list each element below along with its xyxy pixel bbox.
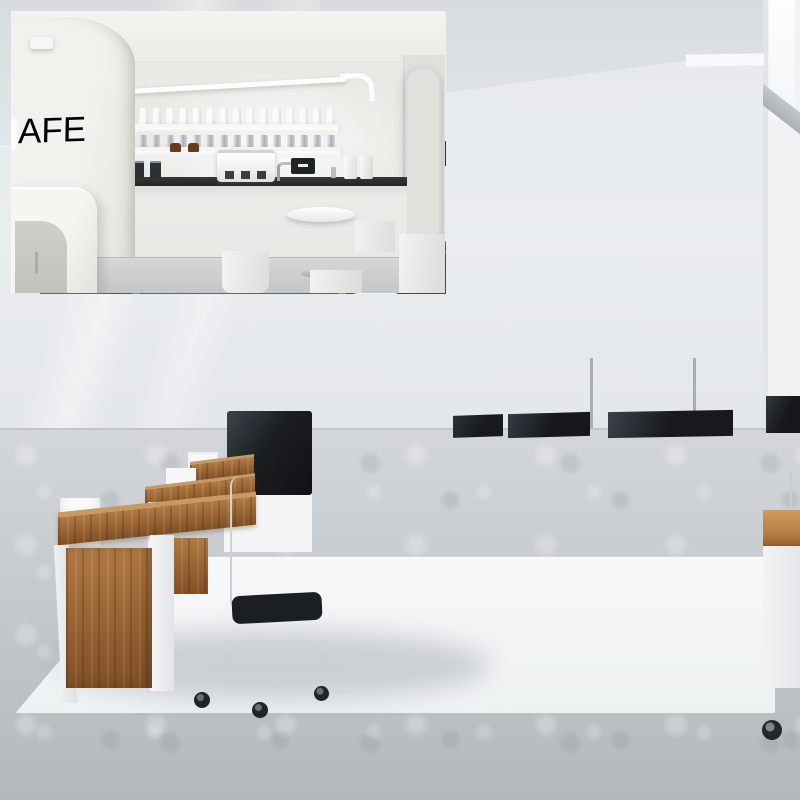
faucet [277, 162, 292, 181]
shelf-bag [139, 108, 148, 124]
shelf-cup [287, 135, 295, 147]
chair-seat [231, 592, 322, 625]
right-drawer-seam-2 [763, 648, 800, 650]
cabinet-seam-5 [353, 186, 354, 260]
cabinet-seam-4 [307, 186, 308, 260]
shelf-cup [313, 135, 321, 147]
dotted-oval-panel [405, 67, 441, 243]
right-chair-caster [762, 720, 782, 740]
monitor-back-row-1 [453, 414, 503, 438]
desk1-leg-right [150, 535, 174, 691]
shelf-bag [286, 108, 295, 124]
paper-bag-1 [344, 156, 357, 179]
grinder-small-2 [150, 161, 161, 180]
coffee-grinder-2 [187, 151, 200, 178]
shelf-cup [273, 135, 281, 147]
right-desk-top [763, 510, 800, 546]
espresso-machine [217, 150, 275, 182]
cafe-photo: AFE [11, 11, 445, 293]
drawer-handle-1 [92, 562, 126, 566]
right-drawer-unit [763, 546, 800, 688]
chair-column [262, 620, 271, 674]
stool-1-top [222, 243, 269, 259]
cabinet-seam-1 [169, 186, 170, 260]
monitor-back-row-3 [608, 410, 733, 438]
shelf-bag [232, 108, 241, 124]
office-chair [190, 474, 325, 719]
shelf-bag [152, 108, 161, 124]
stool-4 [355, 214, 395, 252]
stool-3-top [399, 225, 445, 242]
shelf-bag [246, 108, 255, 124]
machine-group-2 [241, 171, 250, 179]
stool-2 [310, 261, 362, 293]
shelf-bag [272, 108, 281, 124]
collage-stage: AFE [0, 0, 800, 800]
chair-back [230, 476, 314, 606]
drawer-handle-2 [90, 596, 124, 600]
stool-3 [399, 225, 445, 293]
inner-stool-leg [35, 252, 38, 274]
neon-sign: AFE [18, 110, 87, 152]
menu-screen-glyph [298, 164, 308, 167]
panel-band-2 [407, 187, 439, 194]
drawer-handle-3 [88, 628, 122, 632]
table-top [287, 207, 355, 222]
shelf-bag [192, 108, 201, 124]
menu-screen [291, 158, 315, 174]
right-drawer-seam-1 [763, 604, 800, 606]
chair-caster-2 [252, 702, 268, 718]
reception-opening [15, 221, 67, 293]
shelf-bags-row [139, 107, 335, 124]
inner-stool-base [27, 277, 47, 281]
drawer-seam-1 [66, 584, 152, 586]
panel-band-1 [407, 131, 439, 138]
shelf-cup [300, 135, 308, 147]
cafe-ceiling-light-2 [309, 35, 343, 53]
drawer-seam-3 [66, 650, 152, 652]
shelf-cup [152, 135, 160, 147]
syrup-bottle [331, 167, 336, 178]
chair-caster-3 [314, 686, 329, 701]
coffee-grinder-1 [169, 151, 182, 178]
machine-group-3 [257, 171, 266, 179]
machine-group-1 [225, 171, 234, 179]
cabinet-seam-2 [215, 186, 216, 260]
reception-counter [11, 187, 97, 293]
neon-sign-cut-letter [11, 119, 15, 149]
shelf-cup [139, 135, 147, 147]
chair-caster-1 [194, 692, 210, 708]
stool-2-top [310, 261, 362, 279]
cafe-ceiling-light-1 [157, 33, 193, 52]
drawer-seam-2 [66, 618, 152, 620]
stool-4-top [355, 214, 395, 227]
shelf-cups-row [139, 135, 335, 147]
shelf-cup [260, 135, 268, 147]
shelf-bag [166, 108, 175, 124]
shelf-bag [206, 108, 215, 124]
shelf-cup [206, 135, 214, 147]
milk-jug [207, 167, 216, 178]
shelf-bag [312, 108, 321, 124]
stool-3-body [399, 234, 445, 293]
shelf-bag [299, 108, 308, 124]
shelf-cup [233, 135, 241, 147]
shelf-bag [219, 108, 228, 124]
shelf-bag [259, 108, 268, 124]
ceiling-beam-white [686, 53, 764, 66]
cylinder-pendant-lamp [30, 37, 53, 49]
shelf-cup [220, 135, 228, 147]
shelf-bag [326, 108, 335, 124]
shelf-bag [179, 108, 188, 124]
shelf-cup [327, 135, 335, 147]
paper-bag-2 [360, 156, 373, 179]
monitor-back-row-2 [508, 412, 590, 438]
drawer-pedestal [66, 548, 152, 688]
shelf-cup [246, 135, 254, 147]
stool-1 [222, 243, 269, 293]
right-monitor [766, 396, 800, 433]
